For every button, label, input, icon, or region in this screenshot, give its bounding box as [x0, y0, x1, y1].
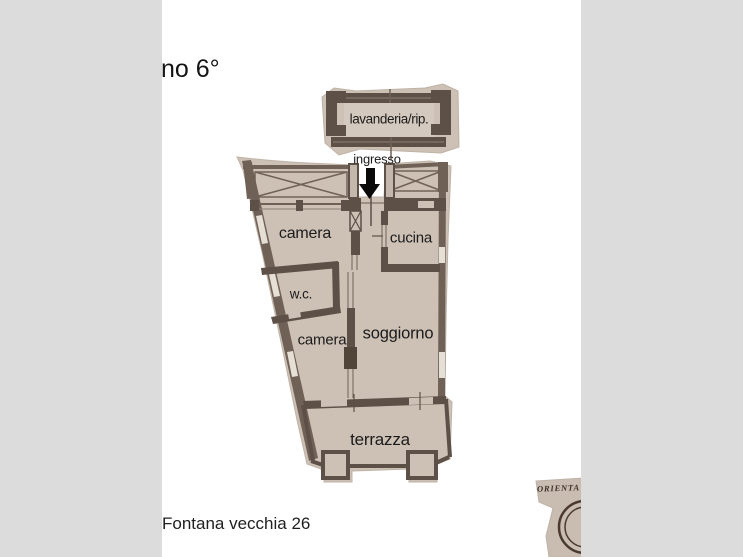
down-arrow-icon	[359, 168, 380, 199]
room-label-soggiorno: soggiorno	[363, 325, 434, 344]
room-label-camera-2: camera	[298, 332, 347, 349]
page-title: no 6°	[161, 55, 220, 84]
left-gray-panel	[0, 0, 162, 557]
entrance-label: ingresso	[353, 152, 401, 167]
room-label-terrazza: terrazza	[350, 430, 410, 450]
right-gray-panel	[581, 0, 743, 557]
room-label-cucina: cucina	[390, 230, 432, 247]
room-label-camera-1: camera	[279, 225, 331, 243]
room-label-wc: w.c.	[290, 287, 312, 302]
compass-label: ORIENTA	[537, 482, 580, 493]
room-label-lavanderia: lavanderia/rip.	[350, 112, 429, 127]
address-label: Fontana vecchia 26	[162, 514, 310, 534]
